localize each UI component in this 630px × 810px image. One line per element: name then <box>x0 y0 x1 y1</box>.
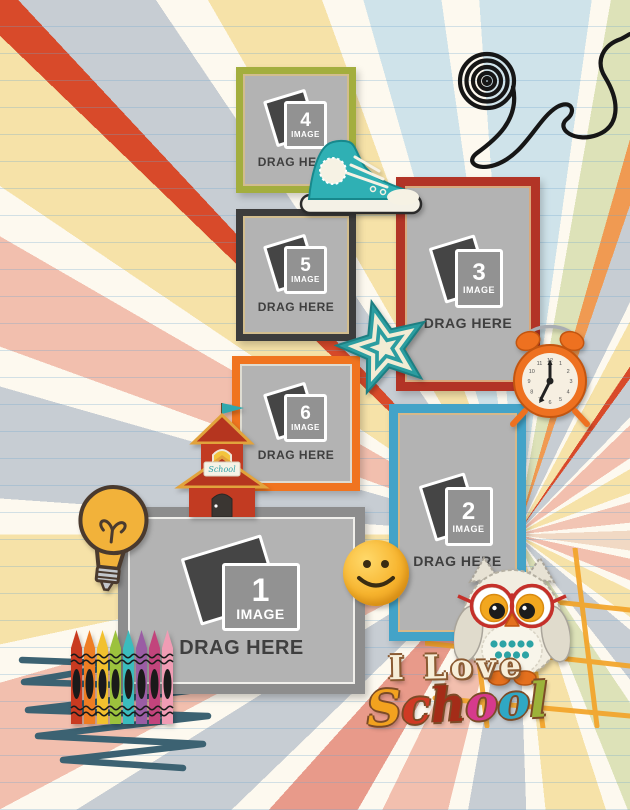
frame-number: 6 <box>300 404 311 423</box>
school-letter: o <box>496 673 531 731</box>
frame-number: 3 <box>472 261 485 285</box>
photo-front-card: 1 IMAGE <box>222 563 300 631</box>
image-dropzone-1[interactable]: 1 IMAGE DRAG HERE <box>118 507 365 694</box>
photo-placeholder-icon: 1 IMAGE <box>185 541 299 631</box>
photo-front-card: 2 IMAGE <box>445 487 493 546</box>
drag-here-label: DRAG HERE <box>179 637 304 660</box>
svg-text:4: 4 <box>567 390 570 396</box>
svg-text:2: 2 <box>567 369 570 375</box>
image-label: IMAGE <box>291 131 320 139</box>
svg-text:7: 7 <box>538 397 541 403</box>
title-line-school: School <box>351 675 563 734</box>
drag-here-label: DRAG HERE <box>258 448 335 462</box>
frame-number: 4 <box>300 111 311 130</box>
drag-here-label: DRAG HERE <box>258 155 335 169</box>
image-dropzone-4[interactable]: 4 IMAGE DRAG HERE <box>236 67 356 193</box>
image-label: IMAGE <box>452 525 484 534</box>
svg-text:12: 12 <box>547 358 553 364</box>
school-letter: S <box>365 680 403 738</box>
wire-scribble-icon <box>425 15 630 185</box>
photo-placeholder-icon: 5 IMAGE <box>267 237 325 293</box>
school-letter: o <box>464 675 499 733</box>
drag-here-label: DRAG HERE <box>258 300 335 314</box>
drag-here-label: DRAG HERE <box>413 553 502 569</box>
photo-placeholder-icon: 3 IMAGE <box>434 238 502 306</box>
svg-text:6: 6 <box>548 400 551 406</box>
photo-front-card: 4 IMAGE <box>284 101 327 149</box>
photo-placeholder-icon: 4 IMAGE <box>267 92 325 148</box>
image-dropzone-5[interactable]: 5 IMAGE DRAG HERE <box>236 209 356 341</box>
frame-number: 5 <box>300 256 311 275</box>
photo-placeholder-icon: 6 IMAGE <box>267 385 325 441</box>
school-letter: h <box>429 676 467 734</box>
page-title: I Love School <box>351 648 562 730</box>
frame-number: 1 <box>252 574 270 606</box>
image-dropzone-2[interactable]: 2 IMAGE DRAG HERE <box>389 404 526 641</box>
school-letter: l <box>528 672 549 729</box>
scrapbook-template-canvas: 4 IMAGE DRAG HERE 5 IMAGE DRAG HERE 6 IM… <box>0 0 630 810</box>
svg-text:3: 3 <box>569 379 572 385</box>
frame-number: 2 <box>462 500 475 524</box>
photo-placeholder-icon: 2 IMAGE <box>424 476 492 544</box>
svg-text:5: 5 <box>559 397 562 403</box>
photo-front-card: 5 IMAGE <box>284 246 327 294</box>
drag-here-label: DRAG HERE <box>424 315 513 331</box>
image-label: IMAGE <box>291 424 320 432</box>
image-label: IMAGE <box>236 607 284 621</box>
image-dropzone-6[interactable]: 6 IMAGE DRAG HERE <box>232 356 360 491</box>
photo-front-card: 3 IMAGE <box>455 249 503 308</box>
image-label: IMAGE <box>291 276 320 284</box>
image-label: IMAGE <box>463 286 495 295</box>
photo-front-card: 6 IMAGE <box>284 394 327 442</box>
image-dropzone-3[interactable]: 3 IMAGE DRAG HERE <box>396 177 540 391</box>
svg-text:1: 1 <box>559 361 562 367</box>
school-letter: c <box>400 678 432 735</box>
